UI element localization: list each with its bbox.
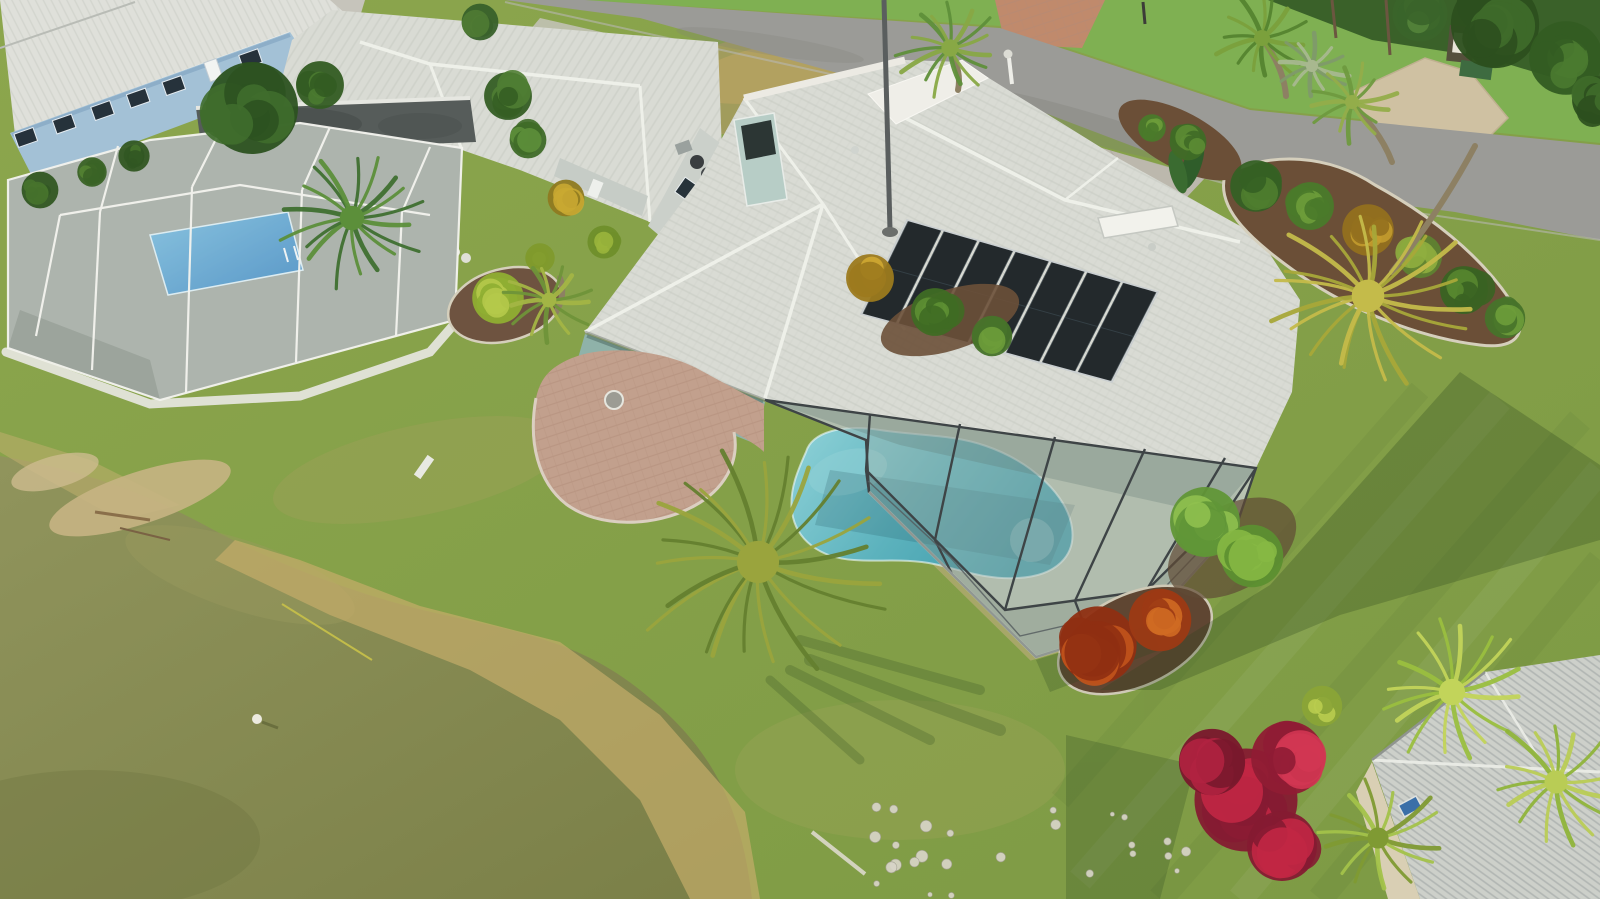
roof-vent-2 xyxy=(851,146,859,154)
chimney-flue xyxy=(741,120,776,160)
bush xyxy=(1170,124,1207,161)
neighbor-pool-enclosure xyxy=(6,123,462,404)
bush xyxy=(972,316,1012,356)
bush xyxy=(846,254,894,302)
bush xyxy=(472,272,524,324)
bush xyxy=(22,172,59,209)
bush xyxy=(462,4,499,41)
bush xyxy=(118,140,149,171)
bush xyxy=(548,180,585,217)
bush xyxy=(296,61,344,109)
bush xyxy=(1302,686,1342,726)
bush xyxy=(1138,114,1166,142)
sign-post xyxy=(1143,2,1145,24)
trash-bin xyxy=(690,155,704,169)
bush xyxy=(1179,729,1245,795)
flat-roof-stain-2 xyxy=(378,113,462,139)
roof-vent xyxy=(1148,243,1156,251)
patio-fountain xyxy=(605,391,623,409)
street-light-base xyxy=(882,227,898,237)
patio-chair-2 xyxy=(461,253,471,263)
bush xyxy=(1129,589,1192,652)
pond-float xyxy=(252,714,262,724)
aerial-photo-canvas xyxy=(0,0,1600,899)
aerial-photo xyxy=(0,0,1600,899)
bush xyxy=(1230,160,1282,212)
bush xyxy=(77,157,106,186)
mailbox xyxy=(1004,50,1013,59)
